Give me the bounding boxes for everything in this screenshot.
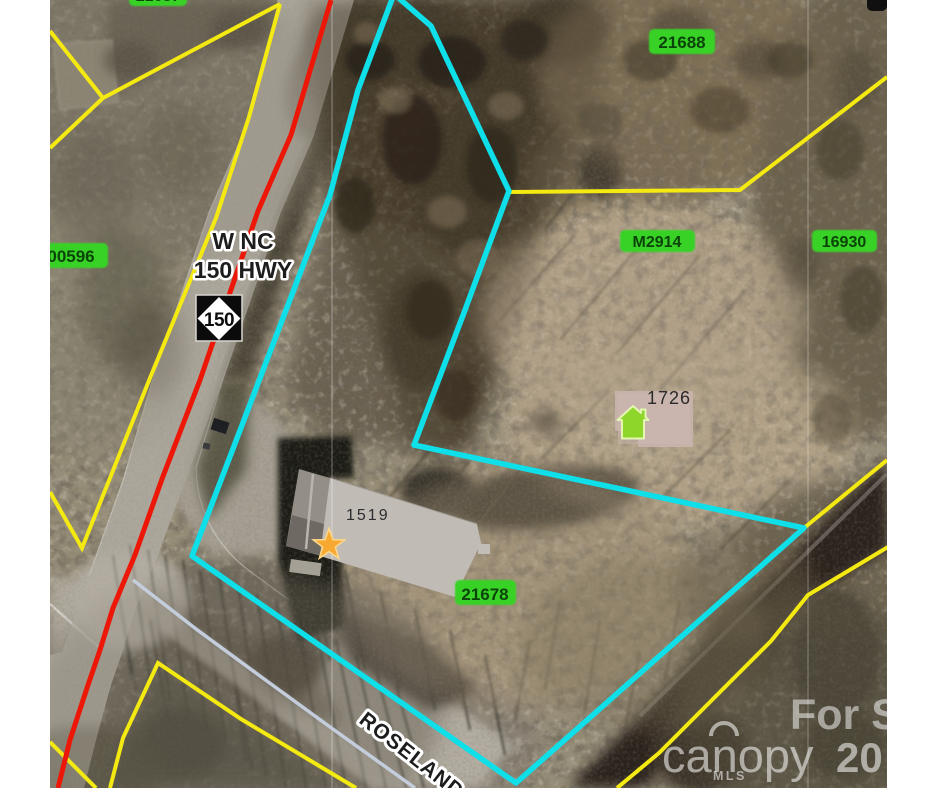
svg-text:1519: 1519 xyxy=(346,507,390,524)
svg-text:M2914: M2914 xyxy=(633,234,682,251)
svg-text:21687: 21687 xyxy=(136,0,181,5)
svg-text:150 HWY: 150 HWY xyxy=(194,257,292,283)
svg-text:21688: 21688 xyxy=(658,33,705,52)
svg-text:1726: 1726 xyxy=(647,388,691,408)
svg-text:MLS: MLS xyxy=(713,769,747,783)
svg-text:20: 20 xyxy=(836,734,883,781)
svg-text:16930: 16930 xyxy=(822,234,867,251)
svg-text:W NC: W NC xyxy=(212,228,273,254)
svg-text:00596: 00596 xyxy=(47,247,94,266)
svg-text:150: 150 xyxy=(204,310,234,331)
svg-text:21678: 21678 xyxy=(461,585,508,604)
